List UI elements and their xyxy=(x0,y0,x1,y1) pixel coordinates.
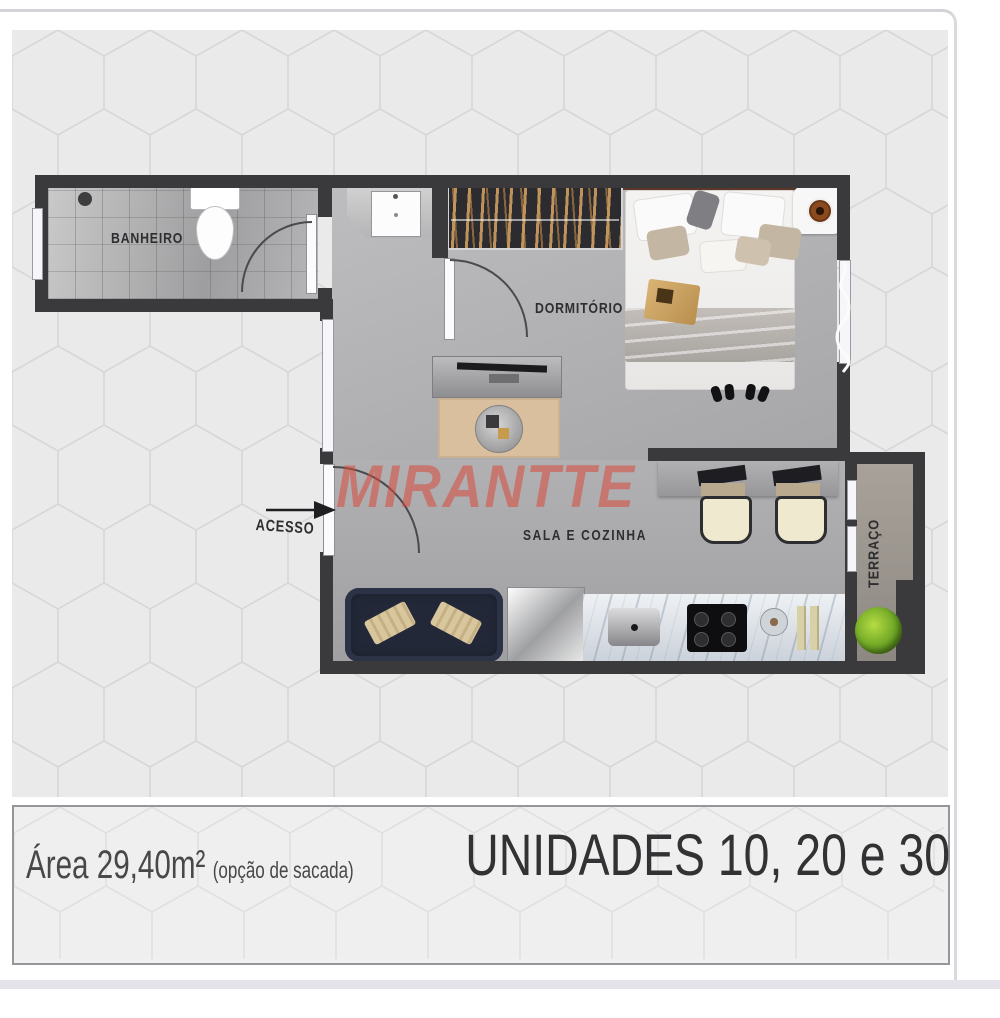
wall-bedroom-right-upper xyxy=(837,175,850,260)
area-text: Área 29,40m²(opção de sacada) xyxy=(26,843,354,888)
wall-terrace-right-upper xyxy=(913,452,925,580)
shower-head xyxy=(78,192,92,206)
washbasin xyxy=(371,191,421,237)
chair-seat xyxy=(775,496,827,544)
wall-bathroom-bottom xyxy=(35,299,332,312)
bedroom-window xyxy=(839,260,851,364)
tv xyxy=(457,362,547,372)
dining-chair xyxy=(698,468,750,540)
bedroom-door-leaf xyxy=(444,258,455,340)
table-decor-dark xyxy=(486,415,499,428)
area-value: Área 29,40m² xyxy=(26,843,205,887)
burner xyxy=(694,612,709,627)
plate xyxy=(760,608,788,636)
tray-item xyxy=(656,288,674,304)
wall-bedroom-right-lower xyxy=(837,362,850,460)
terrace-plant xyxy=(855,607,902,654)
tv-console xyxy=(432,356,562,398)
burner xyxy=(694,632,709,647)
units-text: UNIDADES 10, 20 e 30 xyxy=(465,822,950,889)
wall-closet-left-stub xyxy=(432,186,448,258)
refrigerator xyxy=(507,587,585,663)
nightstand xyxy=(793,186,843,234)
chair-seat xyxy=(700,496,752,544)
hall-window xyxy=(322,319,334,452)
sofa-cushion xyxy=(364,601,417,646)
sofa xyxy=(345,588,503,662)
tv-stand xyxy=(489,374,519,383)
room-label-bathroom: BANHEIRO xyxy=(111,230,183,247)
access-label: ACESSO xyxy=(255,517,315,539)
room-label-terrace: TERRAÇO xyxy=(866,511,881,596)
sofa-cushion xyxy=(430,601,483,646)
burner xyxy=(721,612,736,627)
bottles xyxy=(797,606,823,650)
faucet-dot xyxy=(393,194,398,199)
breakfast-tray xyxy=(643,279,700,326)
closet-rail xyxy=(451,219,619,221)
bathroom-window xyxy=(32,208,43,280)
watermark: MIRANTTE xyxy=(336,452,636,521)
slipper xyxy=(724,384,735,401)
table-decor-tan xyxy=(498,428,509,439)
drain-dot xyxy=(394,213,398,217)
cooktop xyxy=(687,604,747,652)
bottom-frame-band xyxy=(0,980,1000,989)
room-label-bedroom: DORMITÓRIO xyxy=(535,300,623,317)
room-label-living-kitchen: SALA E COZINHA xyxy=(523,527,647,544)
chair-cushion xyxy=(776,483,820,496)
terrace-window-slit xyxy=(847,480,857,520)
area-note: (opção de sacada) xyxy=(213,857,354,883)
kitchen-sink xyxy=(608,608,660,646)
wall-living-left-lower xyxy=(320,552,333,674)
dining-chair xyxy=(773,468,825,540)
kitchen-counter xyxy=(583,594,845,661)
coffee-table xyxy=(475,405,523,453)
terrace-window-slit xyxy=(847,526,857,572)
sink-drain xyxy=(631,624,638,631)
chair-cushion xyxy=(701,483,745,496)
floor-plan-page: BANHEIRO DORMITÓRIO SALA E COZINHA ACESS… xyxy=(0,0,1000,1018)
wall-bedroom-living-divider xyxy=(648,448,850,461)
living-rug xyxy=(438,398,560,458)
entry-door-leaf xyxy=(323,464,335,556)
wall-hall-left-stub xyxy=(320,299,333,321)
bathroom-door-leaf xyxy=(306,214,317,294)
closet-wardrobe xyxy=(447,186,623,250)
wall-bathroom-right-upper xyxy=(318,175,332,217)
tan-pillow xyxy=(734,235,772,267)
wall-bottom xyxy=(320,661,925,674)
table-lamp xyxy=(807,198,833,224)
burner xyxy=(721,632,736,647)
